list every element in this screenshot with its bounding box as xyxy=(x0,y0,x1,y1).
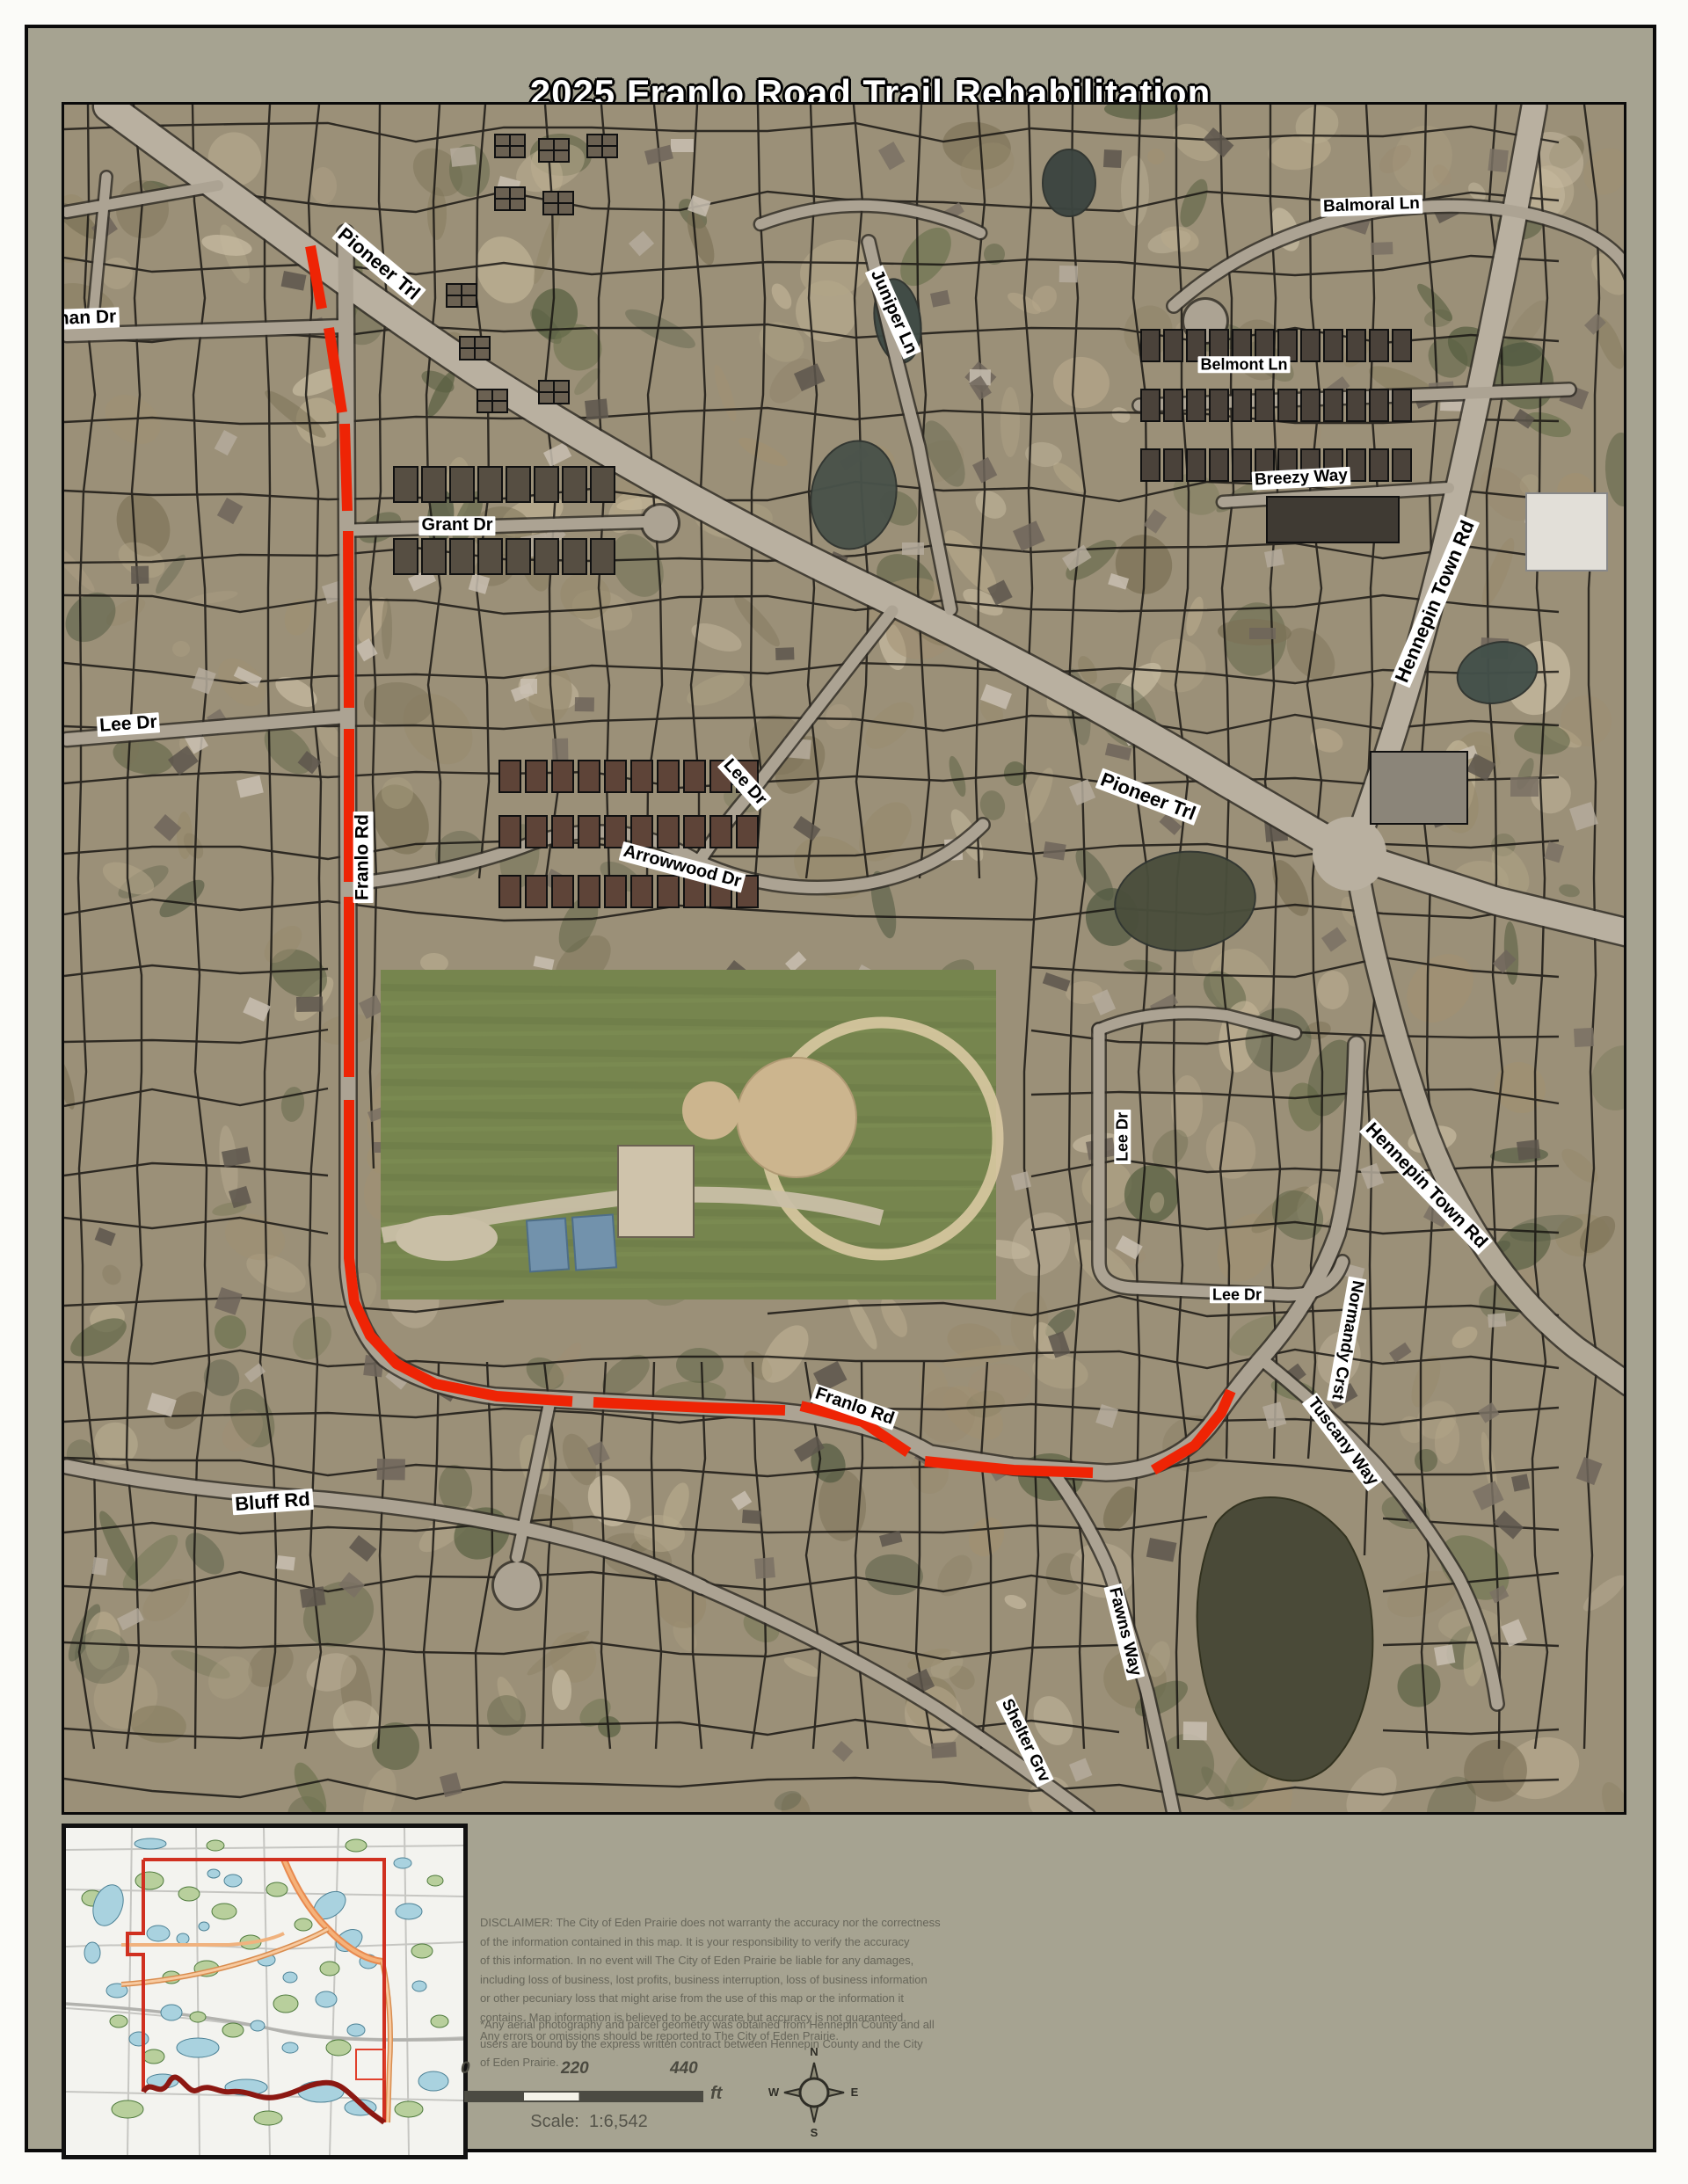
street-label: han Dr xyxy=(62,307,120,329)
svg-text:W: W xyxy=(768,2086,780,2099)
source-note-line: *Any aerial photography and parcel geome… xyxy=(480,2015,955,2035)
trail-segment xyxy=(348,531,349,708)
ballfield-small xyxy=(682,1081,740,1139)
svg-text:N: N xyxy=(810,2045,818,2058)
street-label: Belmont Ln xyxy=(1198,356,1291,373)
ballfield-infield xyxy=(737,1058,856,1177)
street-label: Balmoral Ln xyxy=(1321,195,1422,217)
source-note-line: of Eden Prairie. xyxy=(480,2053,955,2072)
pond xyxy=(1043,149,1095,216)
source-note-line: users are bound by the express written c… xyxy=(480,2035,955,2054)
park-area xyxy=(381,970,998,1299)
scalebar-tick-0: 0 xyxy=(461,2059,470,2078)
scalebar-tick-220: 220 xyxy=(561,2059,589,2078)
tennis-court xyxy=(572,1214,616,1270)
disclaimer-line: including loss of business, lost profits… xyxy=(480,1970,955,1990)
disclaimer-line: of the information contained in this map… xyxy=(480,1933,955,1952)
street-label: Grant Dr xyxy=(418,516,495,535)
locator-inset-canvas xyxy=(66,1828,463,2155)
trail-segment xyxy=(345,424,347,511)
north-arrow-icon: NSEW xyxy=(763,2042,865,2144)
street-label: Lee Dr xyxy=(1114,1110,1131,1164)
map-sheet: 2025 Franlo Road Trail Rehabilitation ha… xyxy=(0,0,1688,2184)
park-building xyxy=(618,1146,694,1237)
street-label: Franlo Rd xyxy=(353,812,374,903)
scalebar-tick-440: 440 xyxy=(670,2059,698,2078)
disclaimer-line: of this information. In no event will Th… xyxy=(480,1951,955,1970)
scale-unit: ft xyxy=(710,2084,722,2104)
aerial-map-canvas xyxy=(64,105,1626,1815)
scale-ratio-label: Scale: 1:6,542 xyxy=(457,2112,721,2132)
disclaimer-line: or other pecuniary loss that might arise… xyxy=(480,1989,955,2008)
svg-text:S: S xyxy=(811,2126,819,2139)
tennis-court xyxy=(527,1219,569,1272)
locator-inset-map xyxy=(62,1824,468,2159)
svg-text:E: E xyxy=(851,2086,859,2099)
intersection xyxy=(1313,817,1386,891)
street-label: Lee Dr xyxy=(1210,1286,1264,1303)
scale-bar xyxy=(464,2091,703,2102)
aerial-map: han DrPioneer TrlJuniper LnBalmoral LnBe… xyxy=(62,102,1626,1815)
disclaimer-line: DISCLAIMER: The City of Eden Prairie doe… xyxy=(480,1913,955,1933)
source-note-text: *Any aerial photography and parcel geome… xyxy=(480,2015,955,2072)
